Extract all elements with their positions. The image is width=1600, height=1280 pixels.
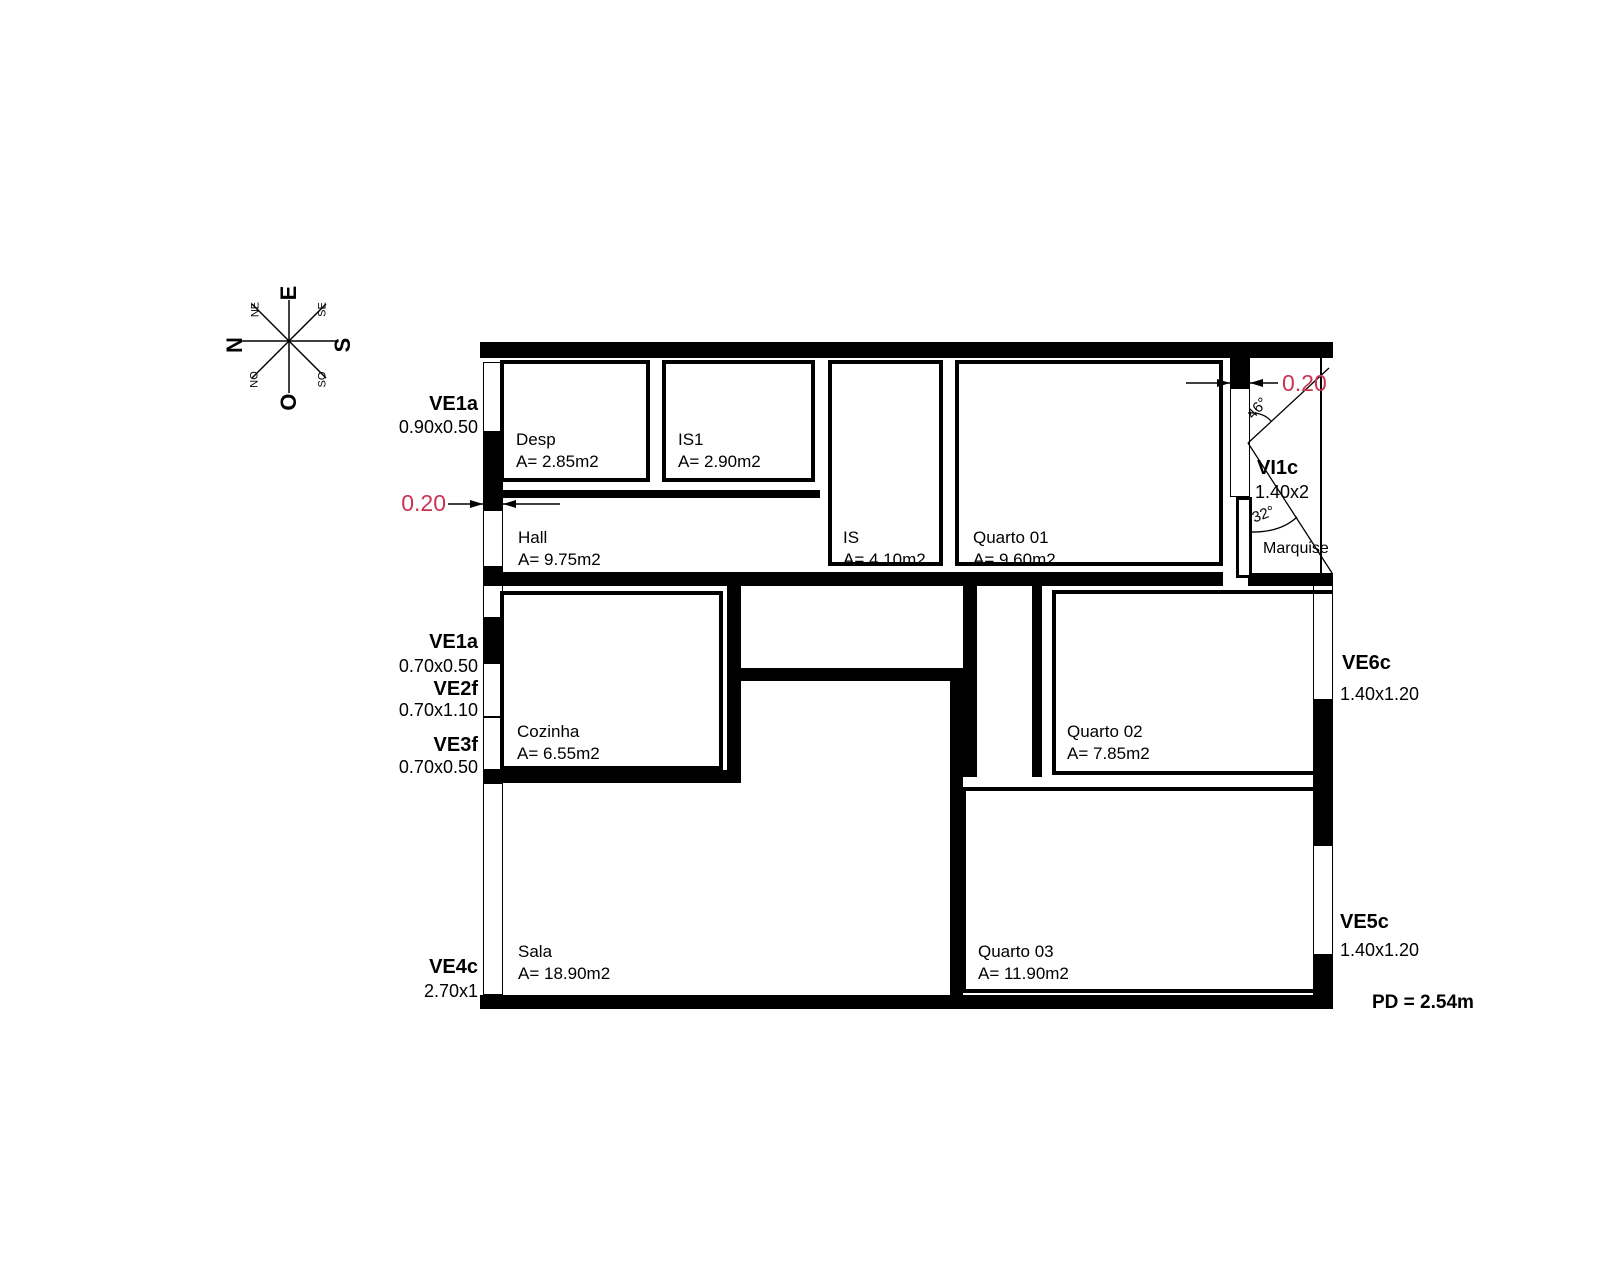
annotation-overlay xyxy=(0,0,1600,1280)
label-quarto01: Quarto 01 xyxy=(973,528,1049,548)
angle-lower-label: 32° xyxy=(1250,503,1277,527)
label-cozinha-area: A= 6.55m2 xyxy=(517,744,600,764)
label-vi1c: VI1c xyxy=(1257,457,1298,480)
wall-corridor-left xyxy=(963,586,977,777)
label-desp-area: A= 2.85m2 xyxy=(516,452,599,472)
compass-label-o: O xyxy=(278,387,300,417)
label-hall-area: A= 9.75m2 xyxy=(518,550,601,570)
label-ve1a-mid: VE1a xyxy=(298,631,478,654)
wall-vi1c-upper xyxy=(1230,358,1250,388)
label-ve2f-size: 0.70x1.10 xyxy=(298,700,478,721)
compass-label-no: NO xyxy=(248,369,261,391)
room-quarto03 xyxy=(962,787,1333,993)
dim-wall-left: 0.20 xyxy=(266,490,446,517)
label-ve1a-mid-size: 0.70x0.50 xyxy=(298,656,478,677)
wall-bottom xyxy=(480,995,1333,1009)
label-quarto01-area: A= 9.60m2 xyxy=(973,550,1056,570)
label-ve1a-top: VE1a xyxy=(298,393,478,416)
label-is: IS xyxy=(843,528,859,548)
label-ve5c: VE5c xyxy=(1340,911,1389,934)
compass-label-s: S xyxy=(332,330,354,360)
wall-top xyxy=(480,342,1333,358)
compass-label-ne: NE xyxy=(249,299,262,321)
label-sala-area: A= 18.90m2 xyxy=(518,964,610,984)
wall-corridor-north xyxy=(483,572,1223,586)
compass-label-so: SO xyxy=(316,369,329,391)
label-ve4c-size: 2.70x1 xyxy=(298,981,478,1002)
floor-plan: E O N S NE SE NO SO Desp A= 2.85m2 IS1 A… xyxy=(0,0,1600,1280)
label-ve4c: VE4c xyxy=(298,956,478,979)
wall-hall-drop xyxy=(727,586,741,783)
label-quarto03-area: A= 11.90m2 xyxy=(978,964,1069,984)
wall-sala-top xyxy=(741,668,963,681)
wall-marquise-bottom xyxy=(1248,573,1333,586)
compass-label-e: E xyxy=(278,278,300,308)
window-unlabeled-hall xyxy=(483,510,503,567)
wall-hall-top xyxy=(501,490,820,498)
compass-label-n: N xyxy=(224,330,246,360)
window-vi1c xyxy=(1230,388,1250,497)
label-is-area: A= 4.10m2 xyxy=(843,550,926,570)
label-quarto02: Quarto 02 xyxy=(1067,722,1143,742)
label-hall: Hall xyxy=(518,528,547,548)
label-marquise: Marquise xyxy=(1263,540,1329,558)
label-is1: IS1 xyxy=(678,430,704,450)
label-ve1a-top-size: 0.90x0.50 xyxy=(298,417,478,438)
label-ve3f-size: 0.70x0.50 xyxy=(298,757,478,778)
label-quarto02-area: A= 7.85m2 xyxy=(1067,744,1150,764)
label-quarto03: Quarto 03 xyxy=(978,942,1054,962)
label-sala: Sala xyxy=(518,942,552,962)
label-ve6c-size: 1.40x1.20 xyxy=(1340,684,1419,705)
label-ve2f: VE2f xyxy=(298,678,478,701)
wall-cozinha-bottom xyxy=(483,770,741,783)
window-ve4c xyxy=(483,783,503,995)
label-ve5c-size: 1.40x1.20 xyxy=(1340,940,1419,961)
label-is1-area: A= 2.90m2 xyxy=(678,452,761,472)
label-ve3f: VE3f xyxy=(298,734,478,757)
dimension-left xyxy=(448,500,560,508)
wall-corridor-right xyxy=(1032,586,1042,777)
compass-label-se: SE xyxy=(316,299,329,321)
label-vi1c-size: 1.40x2 xyxy=(1255,482,1309,503)
ceiling-height-label: PD = 2.54m xyxy=(1372,992,1474,1014)
label-desp: Desp xyxy=(516,430,556,450)
label-ve6c: VE6c xyxy=(1342,652,1391,675)
dim-wall-top: 0.20 xyxy=(1282,370,1327,397)
label-cozinha: Cozinha xyxy=(517,722,579,742)
